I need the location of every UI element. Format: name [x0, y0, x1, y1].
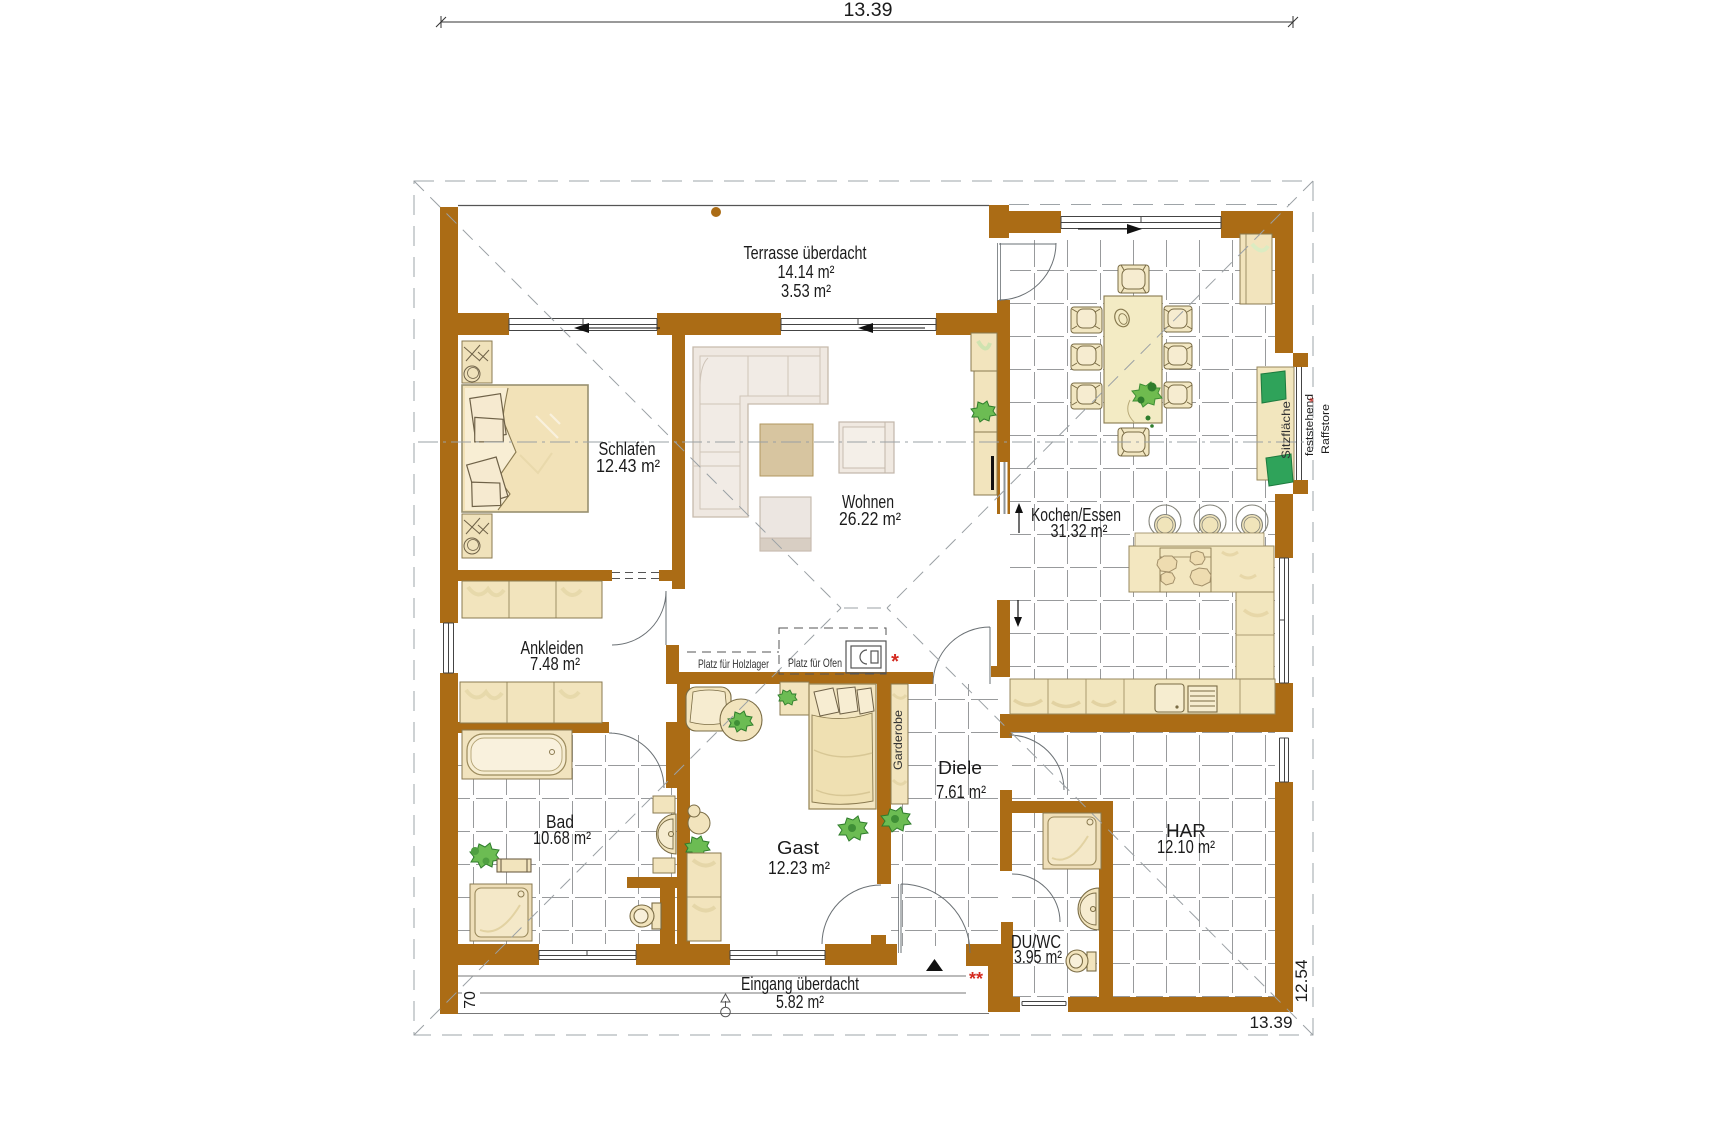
svg-text:Platz für Holzlager: Platz für Holzlager [698, 657, 769, 671]
svg-text:3.53 m²: 3.53 m² [781, 281, 831, 301]
svg-text:Raffstore: Raffstore [1320, 404, 1332, 454]
svg-text:Eingang überdacht: Eingang überdacht [741, 974, 859, 994]
svg-text:7.48 m²: 7.48 m² [530, 654, 580, 674]
svg-text:70: 70 [462, 991, 479, 1009]
svg-text:26.22 m²: 26.22 m² [839, 509, 901, 529]
svg-text:3.95 m²: 3.95 m² [1014, 947, 1062, 967]
svg-text:12.43 m²: 12.43 m² [596, 456, 660, 476]
svg-text:Terrasse überdacht: Terrasse überdacht [744, 243, 867, 263]
svg-text:13.39: 13.39 [844, 0, 893, 21]
svg-text:5.82 m²: 5.82 m² [776, 992, 824, 1012]
svg-text:Sitzfläche: Sitzfläche [1279, 401, 1293, 459]
svg-text:7.61 m²: 7.61 m² [936, 782, 986, 802]
svg-text:Diele: Diele [938, 758, 982, 778]
svg-text:14.14 m²: 14.14 m² [778, 262, 835, 282]
svg-text:Gast: Gast [777, 838, 819, 858]
svg-text:12.54: 12.54 [1292, 960, 1311, 1003]
svg-text:**: ** [969, 969, 983, 989]
svg-text:12.23 m²: 12.23 m² [768, 858, 830, 878]
svg-text:Platz für Ofen: Platz für Ofen [788, 656, 842, 670]
svg-text:*: * [891, 651, 899, 673]
svg-text:Garderobe: Garderobe [891, 710, 905, 770]
svg-text:10.68 m²: 10.68 m² [533, 828, 591, 848]
svg-text:31.32 m²: 31.32 m² [1051, 521, 1108, 541]
svg-text:12.10 m²: 12.10 m² [1157, 837, 1215, 857]
svg-text:*: * [1306, 397, 1321, 402]
svg-text:13.39: 13.39 [1250, 1013, 1293, 1032]
